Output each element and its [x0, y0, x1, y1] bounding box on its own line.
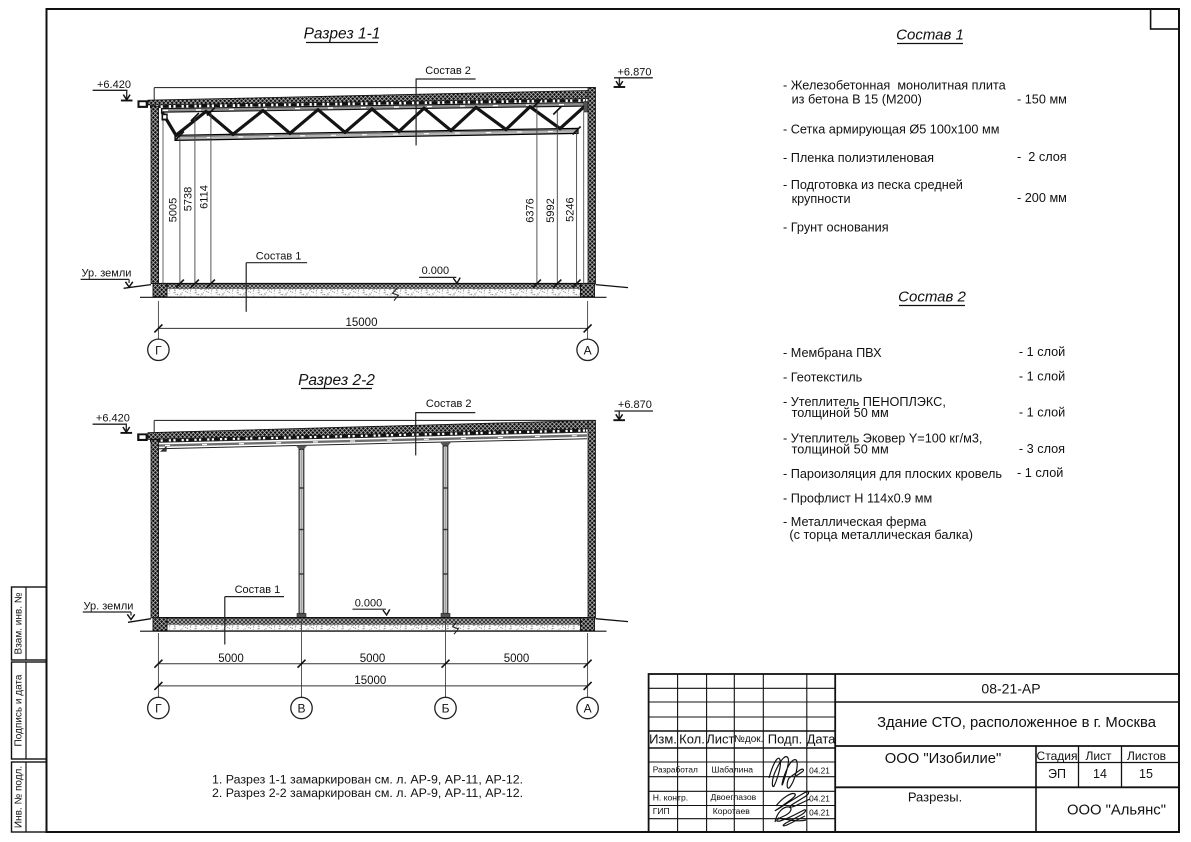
- svg-text:+6.420: +6.420: [97, 79, 131, 91]
- svg-text:из бетона В 15 (М200): из бетона В 15 (М200): [792, 92, 922, 106]
- svg-text:04.21: 04.21: [809, 807, 830, 817]
- svg-text:(с торца металлическая балка): (с торца металлическая балка): [789, 528, 973, 542]
- svg-text:14: 14: [1093, 767, 1107, 781]
- svg-text:- 150 мм: - 150 мм: [1017, 92, 1067, 106]
- svg-text:Взам. инв. №: Взам. инв. №: [14, 592, 25, 654]
- svg-text:Лист: Лист: [1085, 749, 1112, 763]
- svg-text:Инв. № подл.: Инв. № подл.: [14, 766, 25, 828]
- svg-text:Состав 1: Состав 1: [256, 251, 302, 263]
- svg-text:- 1 слой: - 1 слой: [1019, 369, 1065, 383]
- svg-text:08-21-АР: 08-21-АР: [981, 680, 1040, 696]
- svg-text:Дата: Дата: [807, 732, 837, 747]
- svg-text:Разрез 1-1: Разрез 1-1: [304, 26, 381, 43]
- svg-text:толщиной 50 мм: толщиной 50 мм: [792, 406, 889, 420]
- svg-text:толщиной 50 мм: толщиной 50 мм: [792, 443, 889, 457]
- svg-text:+6.870: +6.870: [618, 67, 652, 79]
- svg-text:- Железобетонная монолитная п: - Железобетонная монолитная плита: [783, 79, 1007, 93]
- svg-text:Состав 1: Состав 1: [896, 27, 964, 44]
- svg-text:- Профлист Н 114x0.9 мм: - Профлист Н 114x0.9 мм: [783, 492, 932, 506]
- svg-text:Разрезы.: Разрезы.: [908, 789, 962, 804]
- svg-text:5246: 5246: [564, 197, 576, 221]
- svg-text:ООО "Альянс": ООО "Альянс": [1067, 803, 1166, 819]
- svg-text:- Подготовка из песка средней: - Подготовка из песка средней: [783, 178, 963, 192]
- svg-text:№док.: №док.: [734, 734, 763, 745]
- svg-text:Состав 1: Состав 1: [235, 584, 281, 596]
- svg-text:Состав 2: Состав 2: [898, 289, 966, 306]
- svg-text:- Пароизоляция для плоских кро: - Пароизоляция для плоских кровель: [783, 467, 1002, 481]
- svg-text:15000: 15000: [354, 675, 386, 687]
- svg-text:- 3 слоя: - 3 слоя: [1019, 442, 1065, 456]
- svg-text:Листов: Листов: [1127, 749, 1166, 763]
- svg-text:Кол.: Кол.: [679, 732, 705, 747]
- svg-text:5000: 5000: [504, 653, 530, 665]
- svg-text:крупности: крупности: [792, 192, 851, 206]
- svg-text:ООО "Изобилие": ООО "Изобилие": [885, 751, 1002, 767]
- svg-text:5000: 5000: [360, 653, 386, 665]
- svg-text:ЭП: ЭП: [1048, 767, 1066, 781]
- svg-text:Здание СТО, расположенное в г.: Здание СТО, расположенное в г. Москва: [877, 715, 1157, 731]
- svg-text:А: А: [584, 343, 592, 357]
- svg-text:- 2 слоя: - 2 слоя: [1017, 150, 1067, 164]
- svg-text:1. Разрез 1-1 замаркирован см.: 1. Разрез 1-1 замаркирован см. л. АР-9, …: [212, 773, 523, 787]
- svg-text:- Геотекстиль: - Геотекстиль: [783, 370, 863, 384]
- svg-text:0.000: 0.000: [422, 265, 450, 277]
- svg-text:Двоеглазов: Двоеглазов: [711, 792, 757, 802]
- svg-text:+6.420: +6.420: [96, 413, 130, 425]
- svg-text:Б: Б: [442, 702, 450, 716]
- svg-text:6376: 6376: [525, 198, 537, 222]
- svg-text:15000: 15000: [346, 317, 378, 329]
- svg-text:ГИП: ГИП: [653, 806, 670, 816]
- svg-text:- 1 слой: - 1 слой: [1019, 406, 1065, 420]
- svg-text:5992: 5992: [545, 198, 557, 222]
- svg-text:5000: 5000: [218, 653, 244, 665]
- svg-text:6114: 6114: [199, 185, 211, 209]
- svg-text:Изм.: Изм.: [649, 732, 677, 747]
- svg-text:5005: 5005: [168, 198, 180, 222]
- svg-text:Ур. земли: Ур. земли: [82, 268, 132, 280]
- svg-text:15: 15: [1139, 767, 1153, 781]
- svg-text:Шабалина: Шабалина: [712, 764, 754, 774]
- svg-text:0.000: 0.000: [355, 598, 383, 610]
- svg-text:04.21: 04.21: [809, 794, 830, 804]
- svg-text:Разрез 2-2: Разрез 2-2: [298, 372, 375, 389]
- svg-text:Ур. земли: Ур. земли: [84, 601, 134, 613]
- svg-text:- Сетка армирующая Ø5 100x100: - Сетка армирующая Ø5 100x100 мм: [783, 123, 999, 137]
- svg-text:Лист: Лист: [706, 732, 734, 747]
- svg-text:- Мембрана ПВХ: - Мембрана ПВХ: [783, 346, 882, 360]
- svg-text:2. Разрез 2-2 замаркирован см.: 2. Разрез 2-2 замаркирован см. л. АР-9, …: [212, 786, 523, 800]
- svg-text:04.21: 04.21: [809, 766, 830, 776]
- svg-text:Разработал: Разработал: [653, 764, 698, 774]
- svg-text:Подпись и дата: Подпись и дата: [14, 674, 25, 746]
- svg-text:- Грунт основания: - Грунт основания: [783, 221, 889, 235]
- svg-text:Состав 2: Состав 2: [426, 398, 472, 410]
- svg-text:Стадия: Стадия: [1037, 749, 1078, 763]
- svg-text:+6.870: +6.870: [618, 399, 652, 411]
- svg-text:- 200 мм: - 200 мм: [1017, 191, 1067, 205]
- svg-text:- Пленка полиэтиленовая: - Пленка полиэтиленовая: [783, 151, 934, 165]
- svg-text:5738: 5738: [183, 187, 195, 211]
- svg-text:А: А: [584, 702, 592, 716]
- svg-text:- 1 слой: - 1 слой: [1019, 345, 1065, 359]
- svg-text:Состав 2: Состав 2: [425, 65, 471, 77]
- svg-text:Г: Г: [155, 343, 162, 357]
- svg-text:Подп.: Подп.: [768, 732, 803, 747]
- svg-text:- 1 слой: - 1 слой: [1017, 466, 1063, 480]
- svg-text:Н. контр.: Н. контр.: [653, 792, 688, 802]
- svg-text:Г: Г: [155, 702, 162, 716]
- svg-text:В: В: [297, 702, 305, 716]
- svg-text:Коротаев: Коротаев: [713, 806, 751, 816]
